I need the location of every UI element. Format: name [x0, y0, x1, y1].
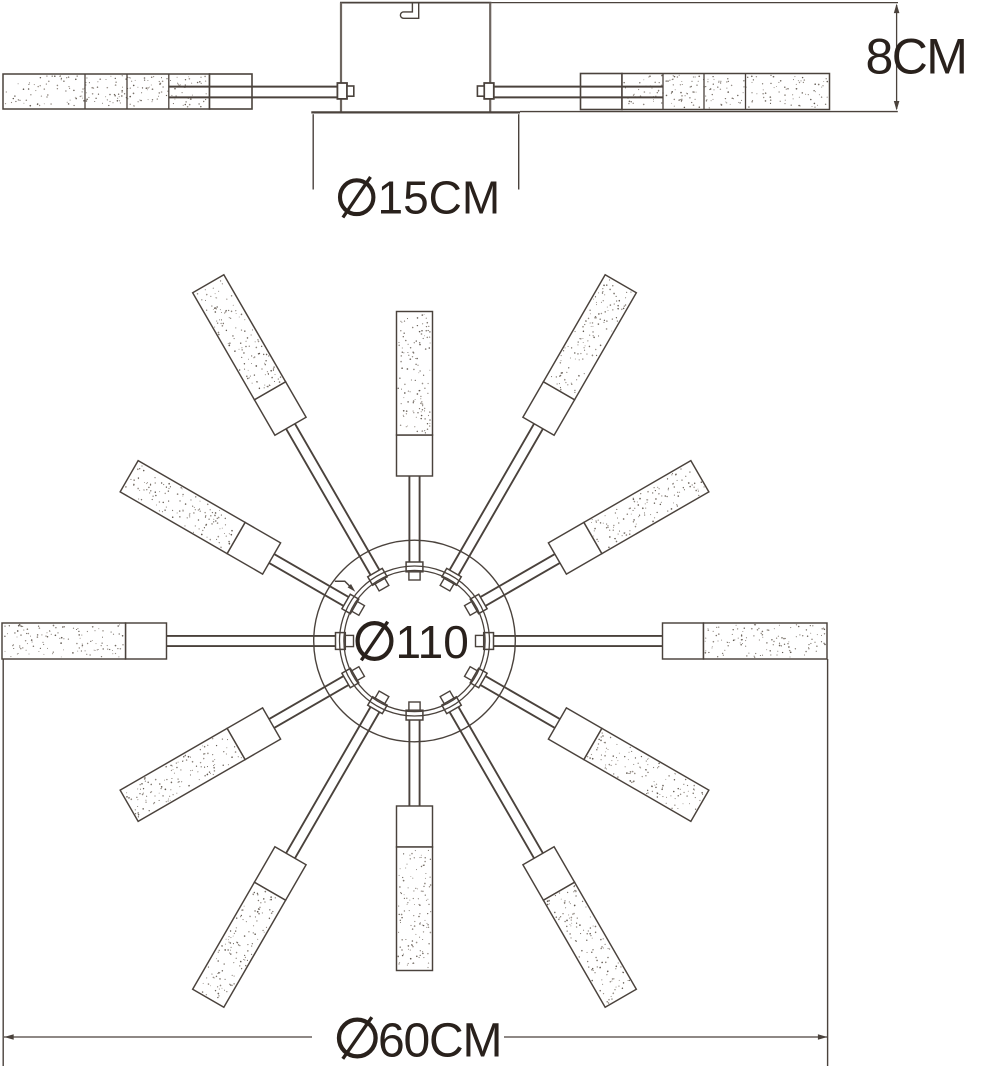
svg-text:60CM: 60CM [378, 1015, 501, 1068]
svg-text:8CM: 8CM [866, 29, 967, 85]
svg-text:110: 110 [396, 616, 469, 668]
svg-text:15CM: 15CM [378, 172, 501, 224]
